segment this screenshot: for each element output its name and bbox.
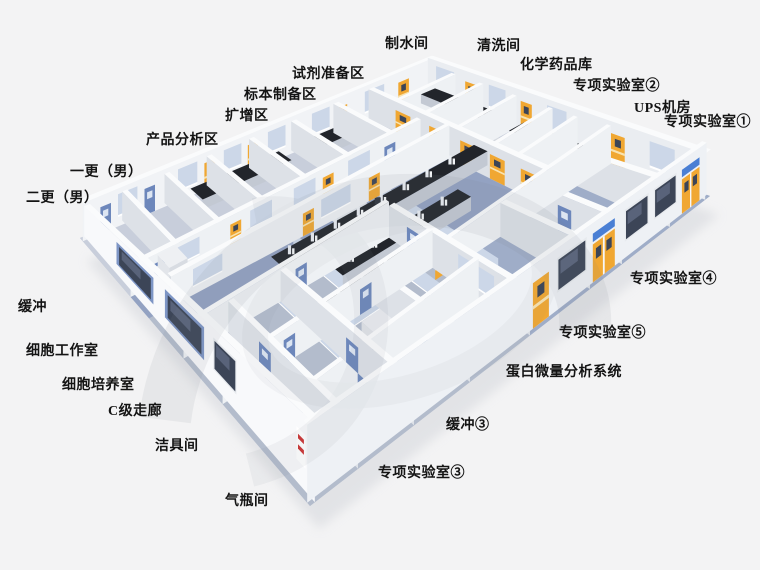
room-label-xibao-peiyangshi: 细胞培养室 bbox=[62, 379, 135, 394]
room-label-huanchong-3: 缓冲③ bbox=[446, 419, 490, 434]
room-label-c-ji-zoulang: C级走廊 bbox=[108, 405, 162, 420]
room-label-chanpin-fenxiqu: 产品分析区 bbox=[146, 134, 219, 149]
room-label-zhuanxiang-4: 专项实验室④ bbox=[630, 273, 717, 288]
lab-floorplan-scene: 制水间清洗间化学药品库专项实验室②UPS机房专项实验室①试剂准备区标本制备区扩增… bbox=[0, 0, 760, 570]
room-label-jiejujian: 洁具间 bbox=[155, 440, 199, 455]
room-label-xibao-gongzuoshi: 细胞工作室 bbox=[26, 345, 99, 360]
room-label-ergeng-nan: 二更（男） bbox=[26, 192, 99, 207]
room-label-zhuanxiang-5: 专项实验室⑤ bbox=[559, 327, 646, 342]
room-label-zhuanxiang-3: 专项实验室③ bbox=[378, 467, 465, 482]
room-label-huanchong: 缓冲 bbox=[18, 301, 47, 316]
room-label-danbai-weiliang: 蛋白微量分析系统 bbox=[506, 366, 622, 381]
room-label-qipingjian: 气瓶间 bbox=[225, 495, 269, 510]
room-label-zhishuijian: 制水间 bbox=[385, 38, 429, 53]
room-label-huaxueyaopinku: 化学药品库 bbox=[520, 59, 593, 74]
room-label-shiji-zhunbeiqu: 试剂准备区 bbox=[292, 68, 365, 83]
room-label-kuozengqu: 扩增区 bbox=[225, 110, 269, 125]
room-label-zhuanxiang-2: 专项实验室② bbox=[573, 80, 660, 95]
room-label-biaoben-zhibeiqu: 标本制备区 bbox=[244, 89, 317, 104]
room-label-qingxijian: 清洗间 bbox=[477, 40, 521, 55]
room-label-yigeng-nan: 一更（男） bbox=[70, 166, 143, 181]
room-label-zhuanxiang-1: 专项实验室① bbox=[664, 116, 751, 131]
